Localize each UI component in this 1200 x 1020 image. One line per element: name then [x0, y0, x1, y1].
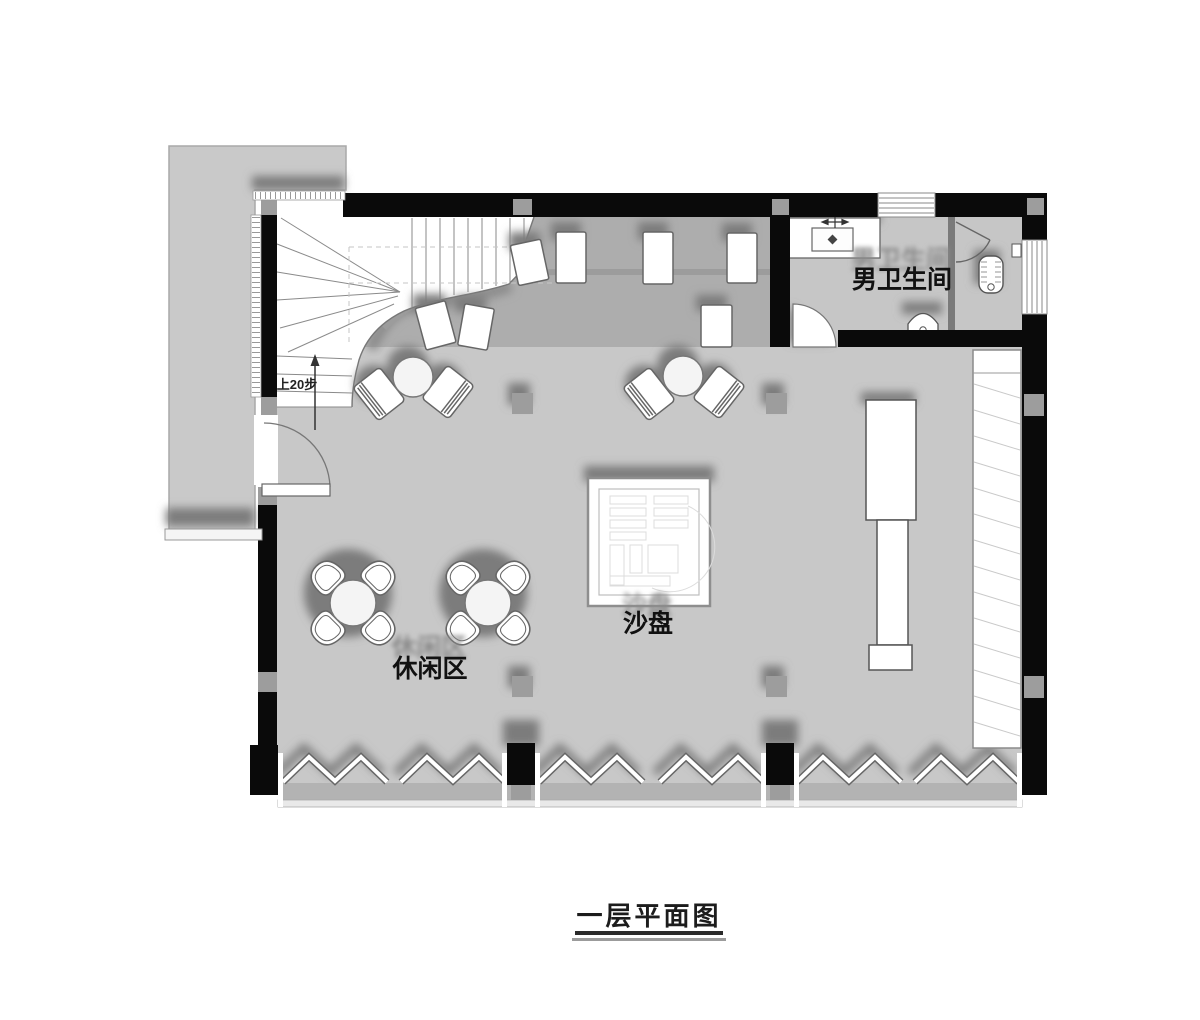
- round-table: [663, 356, 703, 396]
- column: [766, 676, 787, 697]
- column: [512, 393, 533, 414]
- bar-stool: [701, 305, 732, 347]
- bar-stool: [643, 232, 673, 284]
- wall-top: [343, 193, 878, 217]
- door-leaf: [262, 484, 330, 496]
- stair-note-label: 上20步: [277, 377, 317, 392]
- sand-table-label: 沙盘: [623, 609, 673, 638]
- title-block: 一层平面图: [572, 901, 726, 941]
- title-underline-2: [572, 938, 726, 941]
- column: [766, 393, 787, 414]
- column: [512, 676, 533, 697]
- restroom-label: 男卫生间: [852, 266, 952, 294]
- wall-right-corner: [1022, 745, 1047, 795]
- page-title: 一层平面图: [576, 901, 721, 931]
- wall-stair-left: [261, 215, 277, 397]
- floor-plan-drawing: 上20步: [0, 0, 1200, 1020]
- terrace-trim: [165, 529, 262, 540]
- round-table: [393, 357, 433, 397]
- wall-left-corner: [250, 745, 278, 795]
- wall-left: [258, 505, 277, 745]
- pier: [507, 743, 535, 785]
- urinal-icon: [979, 256, 1003, 293]
- wall-restroom-bottom: [838, 330, 1022, 347]
- sand-table: [588, 478, 715, 606]
- bar-stool: [556, 232, 586, 283]
- pier: [766, 743, 794, 785]
- paper-holder-icon: [1012, 244, 1021, 257]
- wall-restroom-left: [770, 215, 790, 347]
- bar-stool: [458, 304, 495, 351]
- window-stair-top: [253, 191, 345, 200]
- window-right: [1022, 240, 1047, 314]
- leisure-area-label: 休闲区: [391, 655, 467, 683]
- title-underline: [575, 931, 723, 935]
- bar-stool: [727, 233, 757, 283]
- floor-plan-page: 上20步: [0, 0, 1200, 1020]
- shelf-hatch-strip: [973, 350, 1021, 748]
- wall-right: [1022, 217, 1047, 240]
